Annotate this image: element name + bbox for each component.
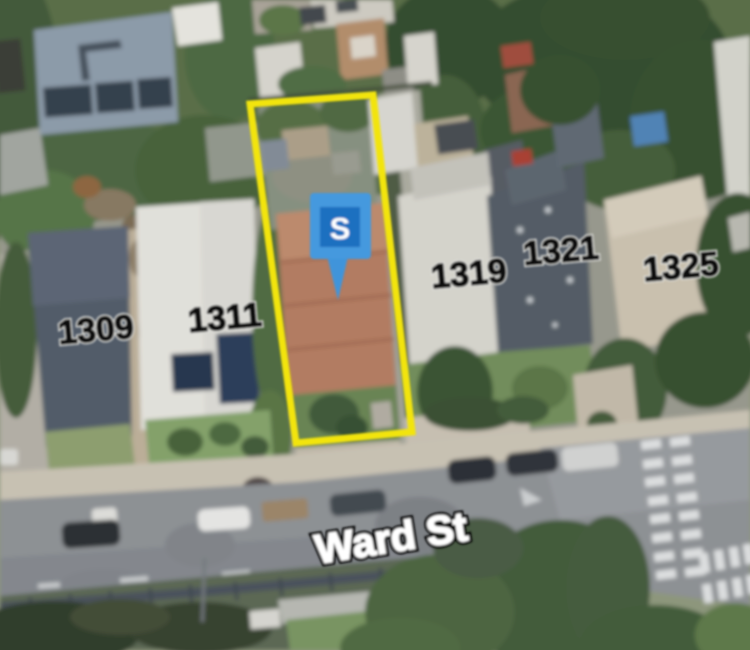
svg-text:1311: 1311 bbox=[187, 296, 264, 340]
svg-text:1319: 1319 bbox=[430, 252, 509, 296]
svg-text:1321: 1321 bbox=[522, 229, 601, 273]
svg-text:S: S bbox=[330, 211, 351, 246]
svg-text:1309: 1309 bbox=[57, 308, 136, 352]
svg-text:1325: 1325 bbox=[642, 245, 721, 289]
